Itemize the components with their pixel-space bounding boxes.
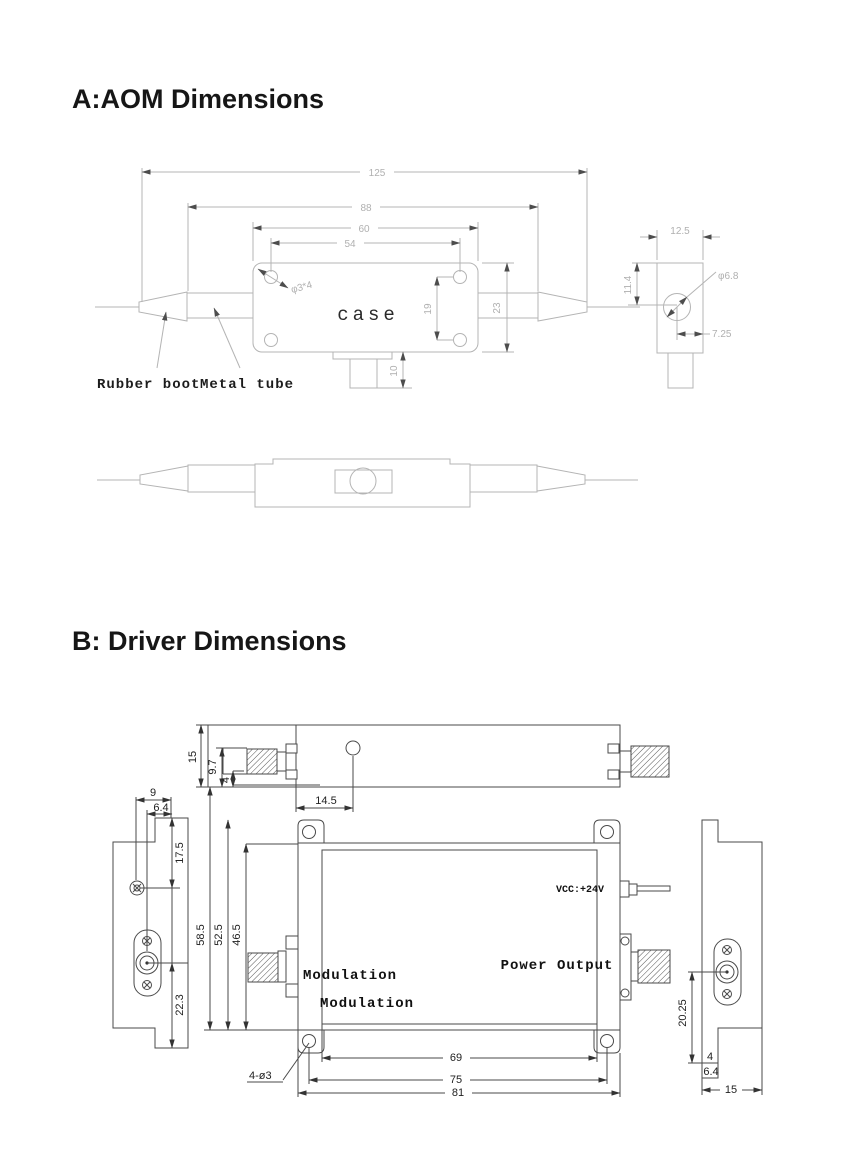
section-a-title: A:AOM Dimensions [72, 84, 324, 115]
dim-left-top-value: 17.5 [174, 842, 186, 863]
dim-front-widths: 69 75 81 [298, 1024, 620, 1099]
dim-v1-value: 58.5 [195, 924, 207, 945]
dim-front-heights: 58.5 52.5 46.5 [195, 787, 298, 1030]
dim-right-width-value: 15 [725, 1084, 737, 1096]
modulation-sma-front [248, 936, 298, 997]
aom-case-front-view: case [253, 263, 478, 352]
dim-hole-spacing: 54 [271, 238, 460, 272]
dim-w-out-value: 81 [452, 1087, 464, 1099]
dim-v2-value: 52.5 [213, 924, 225, 945]
hole-callout-value: φ3*4 [290, 280, 314, 296]
driver-left-side-view: 9 6.4 17.5 22.3 [113, 787, 188, 1048]
dim-left-conn-from-bottom: 22.3 [172, 963, 186, 1048]
dim-left-conn-value: 6.4 [153, 802, 168, 814]
left-pigtail [95, 292, 253, 321]
dim-w-holes-value: 75 [450, 1074, 462, 1086]
mount-hole [454, 334, 467, 347]
aom-bottom-view [97, 459, 638, 507]
dim-left-conn-offset: 6.4 [147, 802, 172, 951]
dim-right-conn-value: 20.25 [677, 999, 689, 1027]
dim-left-bot-value: 22.3 [174, 994, 186, 1015]
aom-side-view: 12.5 11.4 φ6.8 7.25 [623, 226, 739, 388]
dim-case-length: 60 [253, 222, 478, 261]
dim-right-step1-value: 4 [707, 1051, 713, 1063]
dim-top-height-value: 15 [187, 751, 199, 763]
mount-hole [265, 334, 278, 347]
datasheet-page: A:AOM Dimensions 125 88 60 [0, 0, 863, 1156]
dim-case-height: 23 [482, 263, 514, 352]
dim-side-height-value: 11.4 [623, 275, 634, 294]
mount-hole [303, 1035, 316, 1048]
dim-top-conn-value: 9.7 [207, 759, 219, 774]
mount-hole [303, 826, 316, 839]
top-view-hole [346, 741, 360, 755]
dim-left-screw-value: 9 [150, 787, 156, 799]
dim-overall-length-value: 125 [369, 168, 386, 179]
dim-right-conn-height: 20.25 [677, 972, 702, 1063]
rf-connector-tab: 10 [333, 352, 412, 388]
driver-right-side-view: 20.25 4 6.4 15 [677, 820, 762, 1096]
driver-dimension-drawing: 15 9.7 4 14.5 [0, 690, 863, 1156]
dim-top-hole-offset: 14.5 [296, 756, 353, 812]
metal-tube-label: Metal tube [200, 377, 294, 393]
dim-tube-span: 88 [188, 203, 538, 291]
part-labels: Rubber boot Metal tube [97, 308, 294, 393]
dim-side-width-value: 12.5 [670, 226, 690, 237]
modulation-sma-top [223, 744, 297, 779]
power-sma-top [608, 744, 669, 779]
mount-hole-callout-value: 4-ø3 [249, 1070, 272, 1082]
case-label: case [337, 304, 399, 326]
dim-side-offset-value: 7.25 [712, 329, 732, 340]
vcc-label: VCC:+24V [556, 885, 604, 896]
vcc-connector [620, 881, 670, 897]
dim-v3-value: 46.5 [231, 924, 243, 945]
dim-overall-length: 125 [142, 168, 587, 302]
mount-hole [454, 271, 467, 284]
rubber-boot-label: Rubber boot [97, 377, 200, 393]
mount-hole-callout: 4-ø3 [247, 1043, 309, 1082]
dim-hole-vspan-value: 19 [423, 303, 434, 315]
dim-right-step2-value: 6.4 [703, 1066, 718, 1078]
section-b-title: B: Driver Dimensions [72, 626, 347, 657]
dim-top-step-value: 4 [220, 777, 232, 783]
aom-dimension-drawing: 125 88 60 54 [0, 140, 863, 560]
dim-side-hole-value: φ6.8 [718, 271, 739, 282]
dim-case-height-value: 23 [492, 302, 503, 314]
dim-hole-spacing-value: 54 [344, 239, 356, 250]
modulation-label-2: Modulation [320, 996, 414, 1012]
dim-hole-vspan: 19 [423, 277, 453, 340]
driver-front-view: VCC:+24V Modulation Modulation Power Out… [195, 787, 670, 1099]
mount-hole [601, 826, 614, 839]
dim-top-height: 15 [187, 725, 208, 787]
dim-case-length-value: 60 [358, 224, 370, 235]
dim-tab-height-value: 10 [389, 365, 400, 377]
dim-tube-span-value: 88 [360, 203, 372, 214]
power-sma-front [620, 934, 670, 1000]
modulation-label-1: Modulation [303, 968, 397, 984]
dim-top-hole-value: 14.5 [315, 795, 336, 807]
power-output-label: Power Output [501, 958, 614, 974]
dim-w-in-value: 69 [450, 1052, 462, 1064]
mount-hole [601, 1035, 614, 1048]
driver-top-view: 15 9.7 4 14.5 [187, 725, 669, 812]
dim-left-screw-offset: 9 [136, 787, 171, 880]
